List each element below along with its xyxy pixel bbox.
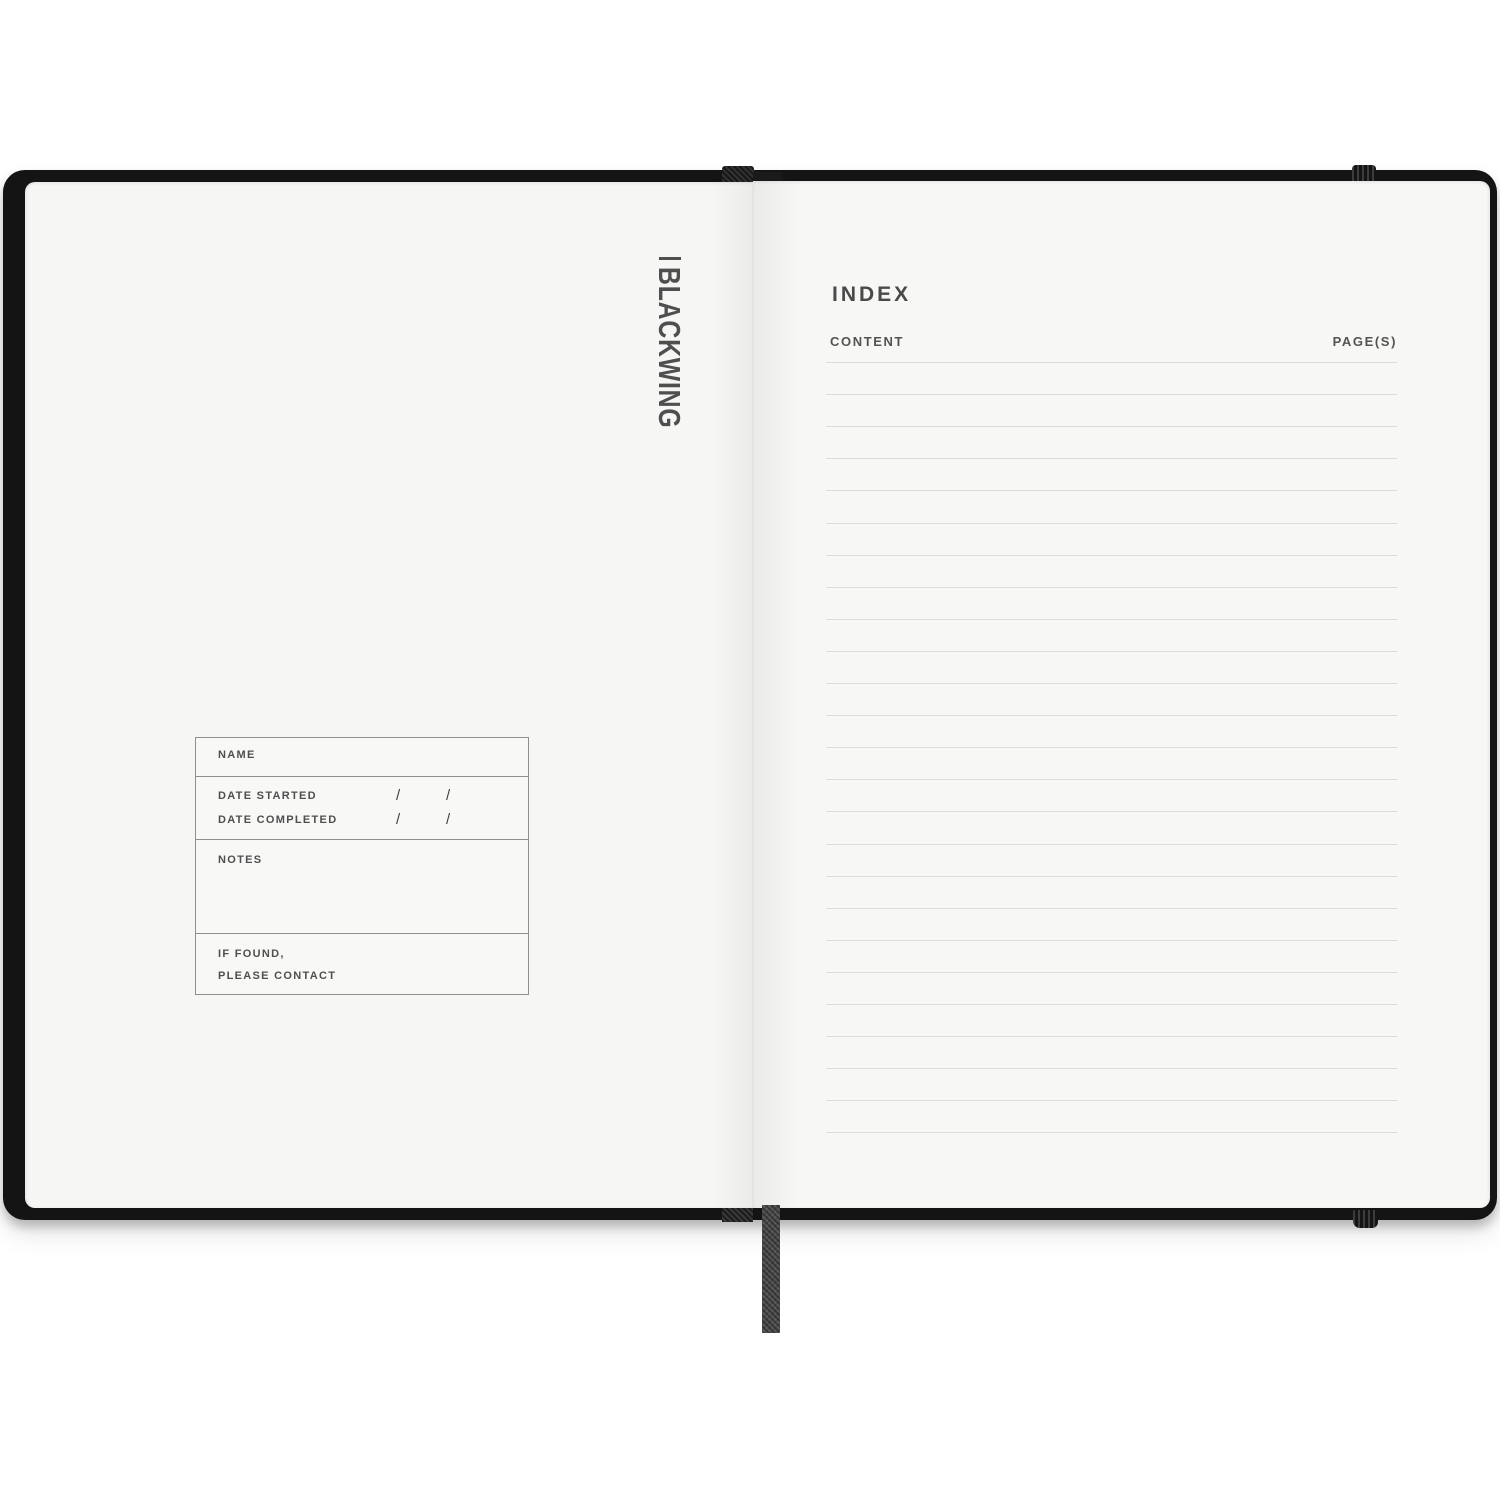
date-slash: / [396,811,400,828]
ruled-line [826,811,1397,812]
ruled-lines [826,362,1397,1134]
ruled-line [826,844,1397,845]
ruled-line [826,1100,1397,1101]
left-page [25,182,753,1208]
ruled-line [826,1036,1397,1037]
ruled-line [826,619,1397,620]
ruled-line [826,362,1397,363]
ruled-line [826,394,1397,395]
ruled-line [826,940,1397,941]
date-slash: / [446,787,450,804]
owner-box-divider [196,839,528,840]
ruled-line [826,908,1397,909]
ruled-line [826,1068,1397,1069]
notebook-product-photo: BLACKWING NAME DATE STARTED / / DATE COM… [0,0,1500,1500]
name-label: NAME [218,749,256,761]
index-pages-header: PAGE(S) [1333,334,1397,349]
date-slash: / [396,787,400,804]
ruled-line [826,1004,1397,1005]
elastic-band-bottom [1353,1210,1378,1228]
if-found-label-line1: IF FOUND, [218,948,285,960]
blackwing-logo: BLACKWING [656,250,684,462]
if-found-label-line2: PLEASE CONTACT [218,970,336,982]
page-gutter [752,182,754,1208]
ruled-line [826,747,1397,748]
ruled-line [826,972,1397,973]
bookmark-ribbon [762,1205,780,1333]
index-title: INDEX [832,283,911,307]
ruled-line [826,523,1397,524]
logo-divider [659,257,681,260]
notes-label: NOTES [218,854,262,866]
ruled-line [826,683,1397,684]
brand-wordmark: BLACKWING [655,267,686,428]
index-content-header: CONTENT [830,334,904,349]
owner-box-divider [196,933,528,934]
ruled-line [826,587,1397,588]
ruled-line [826,426,1397,427]
owner-info-box: NAME DATE STARTED / / DATE COMPLETED / /… [195,737,529,995]
date-completed-label: DATE COMPLETED [218,814,337,826]
owner-box-divider [196,776,528,777]
ruled-line [826,490,1397,491]
ruled-line [826,1132,1397,1133]
ruled-line [826,555,1397,556]
ruled-line [826,458,1397,459]
ruled-line [826,651,1397,652]
ruled-line [826,715,1397,716]
date-started-label: DATE STARTED [218,790,317,802]
ruled-line [826,876,1397,877]
ribbon-anchor-bottom [722,1208,753,1222]
date-slash: / [446,811,450,828]
ruled-line [826,779,1397,780]
